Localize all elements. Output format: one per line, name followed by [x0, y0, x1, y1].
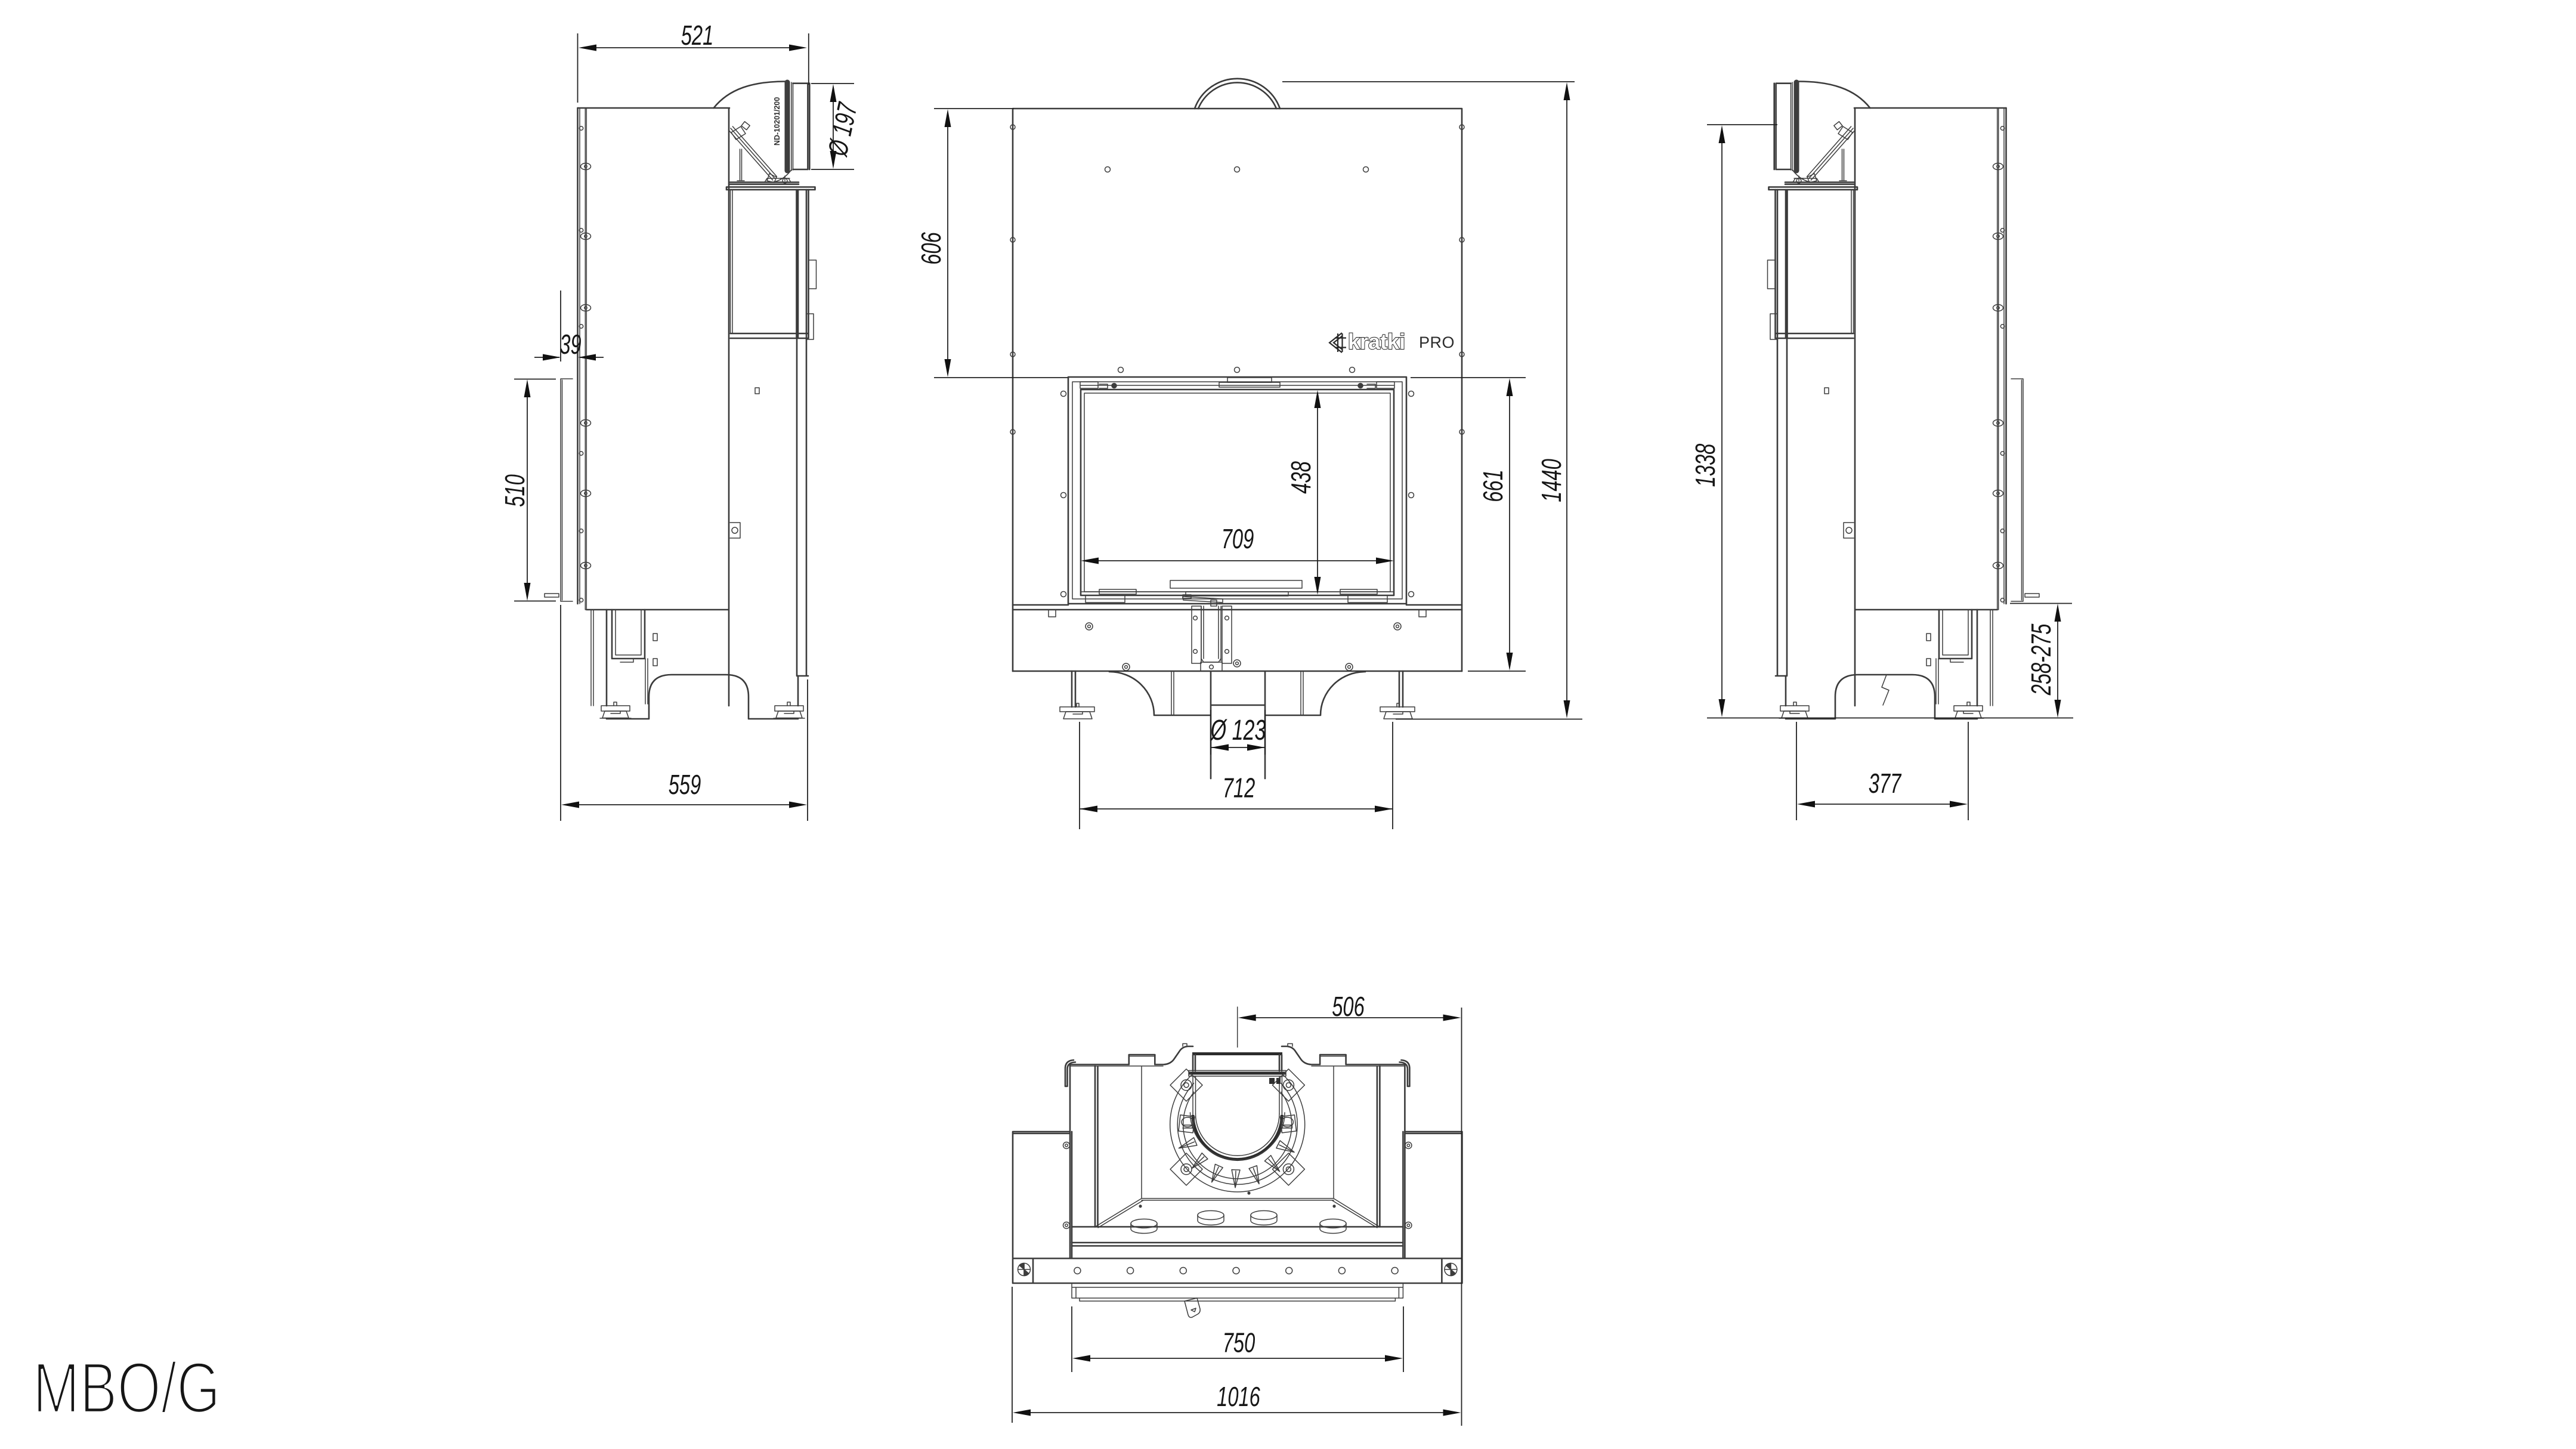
- svg-text:606: 606: [917, 232, 947, 265]
- svg-text:kratki: kratki: [1348, 329, 1405, 354]
- svg-text:661: 661: [1479, 469, 1509, 502]
- svg-text:1440: 1440: [1537, 459, 1567, 502]
- svg-text:750: 750: [1223, 1328, 1255, 1358]
- svg-text:1016: 1016: [1217, 1382, 1260, 1413]
- svg-text:1338: 1338: [1691, 444, 1721, 487]
- svg-text:521: 521: [681, 21, 713, 51]
- svg-text:377: 377: [1869, 769, 1902, 799]
- svg-text:PRO: PRO: [1419, 333, 1455, 351]
- svg-text:Ø 123: Ø 123: [1210, 713, 1266, 746]
- svg-text:ND-10201/200: ND-10201/200: [773, 97, 781, 146]
- svg-text:MBO/G: MBO/G: [33, 1348, 221, 1428]
- svg-text:712: 712: [1223, 773, 1255, 804]
- svg-text:258-275: 258-275: [2027, 623, 2057, 696]
- svg-text:506: 506: [1332, 992, 1365, 1022]
- svg-text:559: 559: [669, 770, 701, 801]
- svg-text:39: 39: [559, 330, 581, 360]
- svg-text:709: 709: [1221, 524, 1254, 555]
- svg-text:510: 510: [500, 474, 531, 506]
- svg-text:438: 438: [1287, 461, 1317, 493]
